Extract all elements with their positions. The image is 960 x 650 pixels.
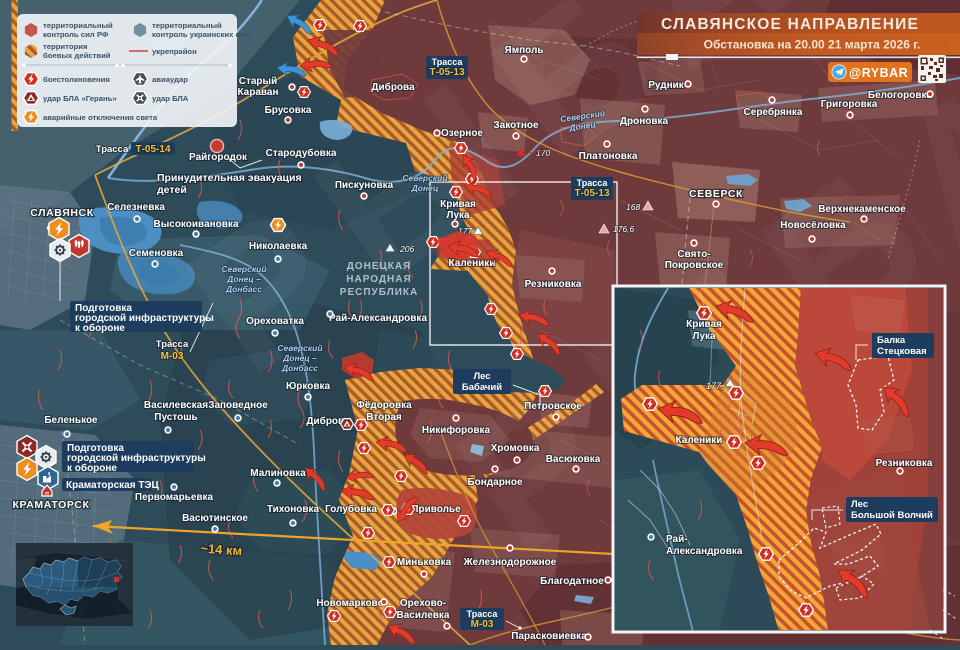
svg-text:территориальный: территориальный xyxy=(43,21,113,30)
svg-text:206: 206 xyxy=(399,244,414,254)
svg-text:Серебрянка: Серебрянка xyxy=(744,106,803,118)
svg-text:Белогоровка: Белогоровка xyxy=(868,90,933,101)
svg-text:Семеновка: Семеновка xyxy=(129,248,184,259)
svg-text:Озерное: Озерное xyxy=(441,128,483,139)
svg-text:Орехово-: Орехово- xyxy=(400,598,446,609)
svg-text:170: 170 xyxy=(536,148,550,158)
svg-text:Новосёловка: Новосёловка xyxy=(780,220,846,231)
svg-text:Трасса: Трасса xyxy=(467,609,499,619)
svg-text:территориальный: территориальный xyxy=(152,21,222,30)
svg-text:~14 км: ~14 км xyxy=(200,541,243,559)
svg-text:Никифоровка: Никифоровка xyxy=(422,424,491,436)
svg-text:Юрковка: Юрковка xyxy=(286,381,331,392)
svg-text:Кривая: Кривая xyxy=(686,319,722,330)
svg-text:Бабачий: Бабачий xyxy=(462,382,502,393)
svg-text:Лука: Лука xyxy=(692,331,716,342)
svg-text:аварийные отключения света: аварийные отключения света xyxy=(43,113,158,122)
svg-text:Донец –: Донец – xyxy=(282,353,317,363)
svg-text:удар БЛА «Герань»: удар БЛА «Герань» xyxy=(43,94,117,103)
svg-text:детей: детей xyxy=(157,184,187,196)
svg-text:Обстановка на 20.00 21 марта 2: Обстановка на 20.00 21 марта 2026 г. xyxy=(704,38,921,52)
svg-text:контроль украинских сил: контроль украинских сил xyxy=(152,30,250,39)
svg-text:Васюковка: Васюковка xyxy=(546,454,601,465)
svg-text:Брусовка: Брусовка xyxy=(265,105,312,116)
svg-text:Рай-Александровка: Рай-Александровка xyxy=(329,313,427,324)
svg-text:авиаудар: авиаудар xyxy=(152,75,188,84)
svg-text:Балка: Балка xyxy=(877,335,906,346)
svg-text:НАРОДНАЯ: НАРОДНАЯ xyxy=(346,274,411,285)
svg-text:Рай-: Рай- xyxy=(666,534,688,545)
svg-text:Рудник: Рудник xyxy=(648,80,685,91)
svg-text:укрепрайон: укрепрайон xyxy=(152,47,197,56)
svg-text:РЕСПУБЛИКА: РЕСПУБЛИКА xyxy=(340,287,418,298)
svg-text:Дроновка: Дроновка xyxy=(620,116,669,127)
svg-text:СЕВЕРСК: СЕВЕРСК xyxy=(689,188,743,200)
svg-text:Т-05-13: Т-05-13 xyxy=(429,67,464,78)
svg-text:к обороне: к обороне xyxy=(75,322,125,334)
svg-text:Николаевка: Николаевка xyxy=(249,241,308,252)
svg-text:боевых действий: боевых действий xyxy=(43,51,111,60)
svg-text:Стародубовка: Стародубовка xyxy=(266,147,337,159)
svg-text:Ямполь: Ямполь xyxy=(505,45,544,56)
svg-text:Северский: Северский xyxy=(277,343,323,353)
svg-text:Селезневка: Селезневка xyxy=(107,202,165,213)
svg-text:Вторая: Вторая xyxy=(366,412,402,423)
svg-text:Каленики: Каленики xyxy=(676,435,723,446)
svg-text:Тихоновка: Тихоновка xyxy=(267,504,320,515)
svg-text:Донбасс: Донбасс xyxy=(225,284,262,294)
svg-text:М-03: М-03 xyxy=(161,351,184,362)
svg-text:Беленькое: Беленькое xyxy=(44,415,98,426)
svg-text:Василевская: Василевская xyxy=(144,400,208,411)
svg-text:КРАМАТОРСК: КРАМАТОРСК xyxy=(13,499,90,511)
svg-text:СЛАВЯНСК: СЛАВЯНСК xyxy=(30,207,94,219)
svg-text:Краматорская ТЭЦ: Краматорская ТЭЦ xyxy=(66,480,160,491)
svg-text:Свято-: Свято- xyxy=(677,249,710,260)
svg-text:@RYBAR: @RYBAR xyxy=(849,66,908,80)
svg-text:Железнодорожное: Железнодорожное xyxy=(463,557,557,568)
svg-text:Принудительная эвакуация: Принудительная эвакуация xyxy=(157,172,302,184)
svg-text:Кривая: Кривая xyxy=(440,199,476,210)
svg-text:Лука: Лука xyxy=(446,210,470,221)
svg-text:к обороне: к обороне xyxy=(67,462,117,474)
svg-text:боестолкновения: боестолкновения xyxy=(43,75,110,84)
svg-text:Парасковиевка: Парасковиевка xyxy=(511,631,587,642)
svg-text:Стецковая: Стецковая xyxy=(877,346,927,357)
svg-text:Трасса: Трасса xyxy=(577,178,609,188)
svg-text:Заповедное: Заповедное xyxy=(208,400,268,411)
svg-text:Малиновка: Малиновка xyxy=(250,468,306,479)
svg-text:Александровка: Александровка xyxy=(666,546,743,557)
svg-text:Каленики: Каленики xyxy=(449,258,496,269)
svg-text:Т-05-14: Т-05-14 xyxy=(135,144,170,155)
svg-text:177,: 177, xyxy=(706,381,724,391)
svg-text:Трасса: Трасса xyxy=(432,57,464,67)
svg-text:Старый: Старый xyxy=(239,76,277,87)
svg-text:Фёдоровка: Фёдоровка xyxy=(356,400,412,411)
svg-text:Закотное: Закотное xyxy=(493,120,539,131)
svg-text:176,6: 176,6 xyxy=(613,224,635,234)
svg-text:Донец –: Донец – xyxy=(226,274,261,284)
svg-text:Лес: Лес xyxy=(851,499,868,510)
svg-text:Покровское: Покровское xyxy=(665,260,724,271)
svg-text:Петровское: Петровское xyxy=(524,401,582,412)
svg-text:Донец: Донец xyxy=(411,183,439,193)
svg-text:Василевка: Василевка xyxy=(397,610,450,621)
svg-text:территория: территория xyxy=(43,42,87,51)
svg-text:Ореховатка: Ореховатка xyxy=(246,316,304,327)
svg-text:Диброва: Диброва xyxy=(371,81,415,93)
svg-text:168: 168 xyxy=(626,202,640,212)
svg-text:Верхнекаменское: Верхнекаменское xyxy=(818,204,906,215)
svg-text:Северский: Северский xyxy=(402,173,448,183)
svg-text:Платоновка: Платоновка xyxy=(579,151,638,162)
svg-text:ДОНЕЦКАЯ: ДОНЕЦКАЯ xyxy=(347,261,412,272)
svg-text:Северский: Северский xyxy=(221,264,267,274)
svg-text:Первомарьевка: Первомарьевка xyxy=(135,492,214,503)
svg-text:Т-05-13: Т-05-13 xyxy=(574,188,609,199)
svg-text:Резниковка: Резниковка xyxy=(876,458,933,469)
svg-text:Донбасс: Донбасс xyxy=(281,363,318,373)
svg-text:Новомарково: Новомарково xyxy=(316,598,383,609)
svg-text:Лес: Лес xyxy=(473,371,490,382)
svg-text:контроль сил РФ: контроль сил РФ xyxy=(43,30,109,39)
svg-text:Трасса: Трасса xyxy=(156,339,189,350)
svg-text:Высокоивановка: Высокоивановка xyxy=(154,219,239,230)
svg-text:Большой Волчий: Большой Волчий xyxy=(851,510,933,521)
svg-text:Миньковка: Миньковка xyxy=(397,557,452,568)
svg-text:Голубовка: Голубовка xyxy=(325,503,377,515)
svg-text:Хромовка: Хромовка xyxy=(491,443,540,454)
svg-text:удар БЛА: удар БЛА xyxy=(152,94,189,103)
svg-text:Пустошь: Пустошь xyxy=(154,412,197,423)
svg-text:Васютинское: Васютинское xyxy=(182,513,248,524)
svg-text:Караван: Караван xyxy=(237,87,278,98)
svg-text:Приволье: Приволье xyxy=(411,504,461,515)
svg-text:Благодатное: Благодатное xyxy=(540,576,604,587)
svg-text:Райгородок: Райгородок xyxy=(189,152,248,163)
svg-text:М-03: М-03 xyxy=(471,619,494,630)
svg-text:Резниковка: Резниковка xyxy=(525,279,582,290)
svg-text:Трасса: Трасса xyxy=(96,144,129,155)
svg-text:Бондарное: Бондарное xyxy=(467,477,523,488)
svg-text:СЛАВЯНСКОЕ НАПРАВЛЕНИЕ: СЛАВЯНСКОЕ НАПРАВЛЕНИЕ xyxy=(661,16,919,33)
svg-text:Пискуновка: Пискуновка xyxy=(335,180,394,191)
